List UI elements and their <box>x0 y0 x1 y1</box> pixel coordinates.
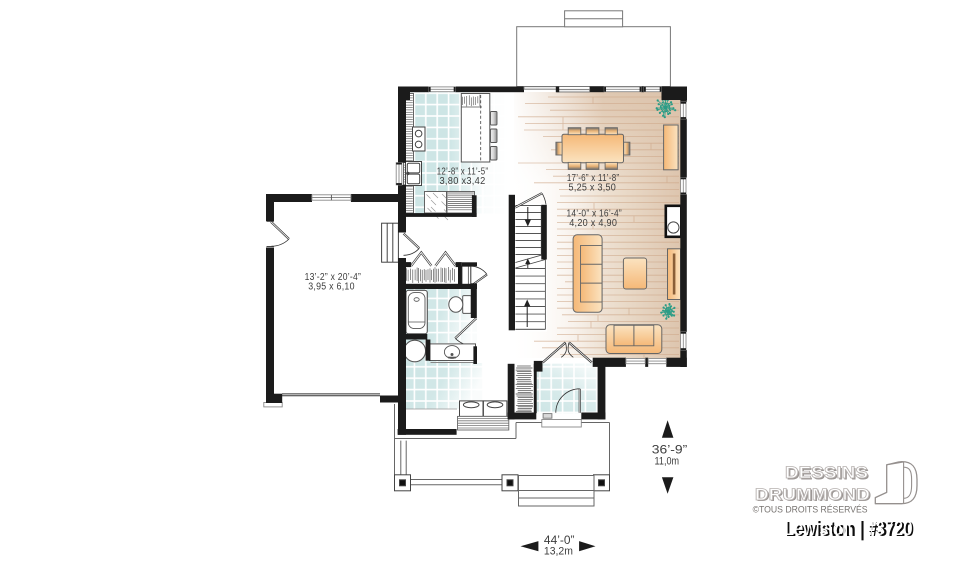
svg-text:3,80 x3,42: 3,80 x3,42 <box>440 176 486 187</box>
svg-text:DRUMMOND: DRUMMOND <box>755 486 870 504</box>
svg-text:Lewiston | #3720: Lewiston | #3720 <box>785 517 913 540</box>
svg-text:DESSINS: DESSINS <box>785 464 868 482</box>
svg-text:5,25 x 3,50: 5,25 x 3,50 <box>569 183 617 194</box>
svg-text:3,95 x 6,10: 3,95 x 6,10 <box>308 282 355 293</box>
svg-text:36’-9”: 36’-9” <box>652 444 688 456</box>
svg-text:4,20 x 4,90: 4,20 x 4,90 <box>569 218 617 229</box>
svg-text:13,2m: 13,2m <box>544 545 573 557</box>
svg-text:©TOUS DROITS RÉSERVÉS: ©TOUS DROITS RÉSERVÉS <box>753 504 868 514</box>
svg-text:11,0m: 11,0m <box>655 456 680 468</box>
